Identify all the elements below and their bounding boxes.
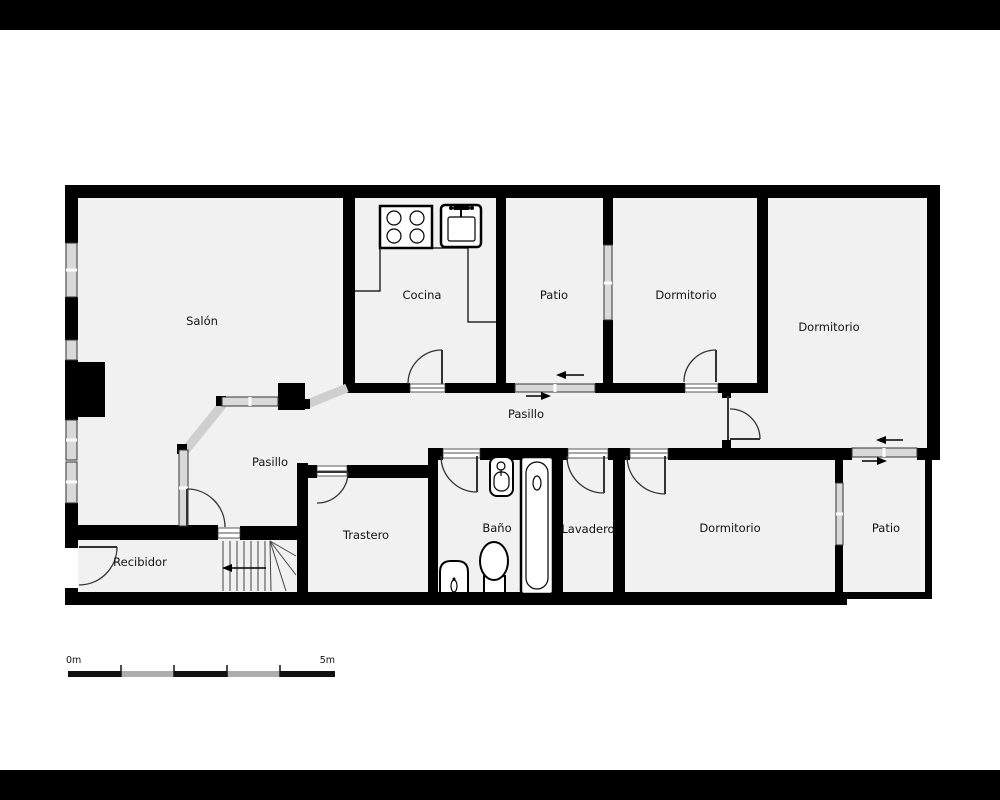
toilet-icon [480, 542, 508, 593]
room-label-trastero: Trastero [342, 528, 389, 542]
floor-plan-page: Salón Cocina Patio Dormitorio Dormitorio… [0, 0, 1000, 800]
room-label-lavadero: Lavadero [561, 522, 614, 536]
door-sill [685, 384, 718, 392]
room-label-dormitorio-top-2: Dormitorio [798, 320, 859, 334]
room-label-cocina: Cocina [403, 288, 442, 302]
letterbox-top [0, 0, 1000, 30]
door-sill [218, 528, 240, 538]
window [66, 243, 77, 297]
door-sill [443, 449, 480, 458]
room-label-patio-bottom: Patio [872, 521, 900, 535]
bidet-icon [440, 561, 468, 593]
window [222, 397, 278, 406]
room-label-pasillo-upper: Pasillo [508, 407, 544, 421]
room-label-dormitorio-top-1: Dormitorio [655, 288, 716, 302]
window [604, 245, 612, 320]
window [515, 384, 595, 392]
stove-icon [380, 206, 432, 248]
scale-start-label: 0m [66, 655, 81, 666]
room-label-bano: Baño [482, 521, 511, 535]
window [852, 448, 917, 457]
washbasin-icon [490, 457, 513, 496]
window [66, 420, 77, 460]
scale-end-label: 5m [320, 655, 335, 666]
room-label-salon: Salón [186, 314, 218, 328]
room-label-pasillo-lower: Pasillo [252, 455, 288, 469]
door-sill [630, 449, 668, 458]
room-label-patio-top: Patio [540, 288, 568, 302]
scale-bar: 0m 5m [66, 655, 335, 677]
floor-plan-canvas: Salón Cocina Patio Dormitorio Dormitorio… [0, 0, 1000, 800]
kitchen-sink-icon [441, 205, 481, 247]
window [66, 340, 77, 360]
bathtub-icon [521, 457, 553, 594]
window [66, 462, 77, 503]
room-label-dormitorio-bottom: Dormitorio [699, 521, 760, 535]
window [836, 483, 843, 545]
letterbox-bottom [0, 770, 1000, 800]
room-label-recibidor: Recibidor [113, 555, 167, 569]
door-sill [568, 449, 608, 458]
fireplace-icon [78, 362, 105, 417]
door-sill [410, 384, 445, 392]
